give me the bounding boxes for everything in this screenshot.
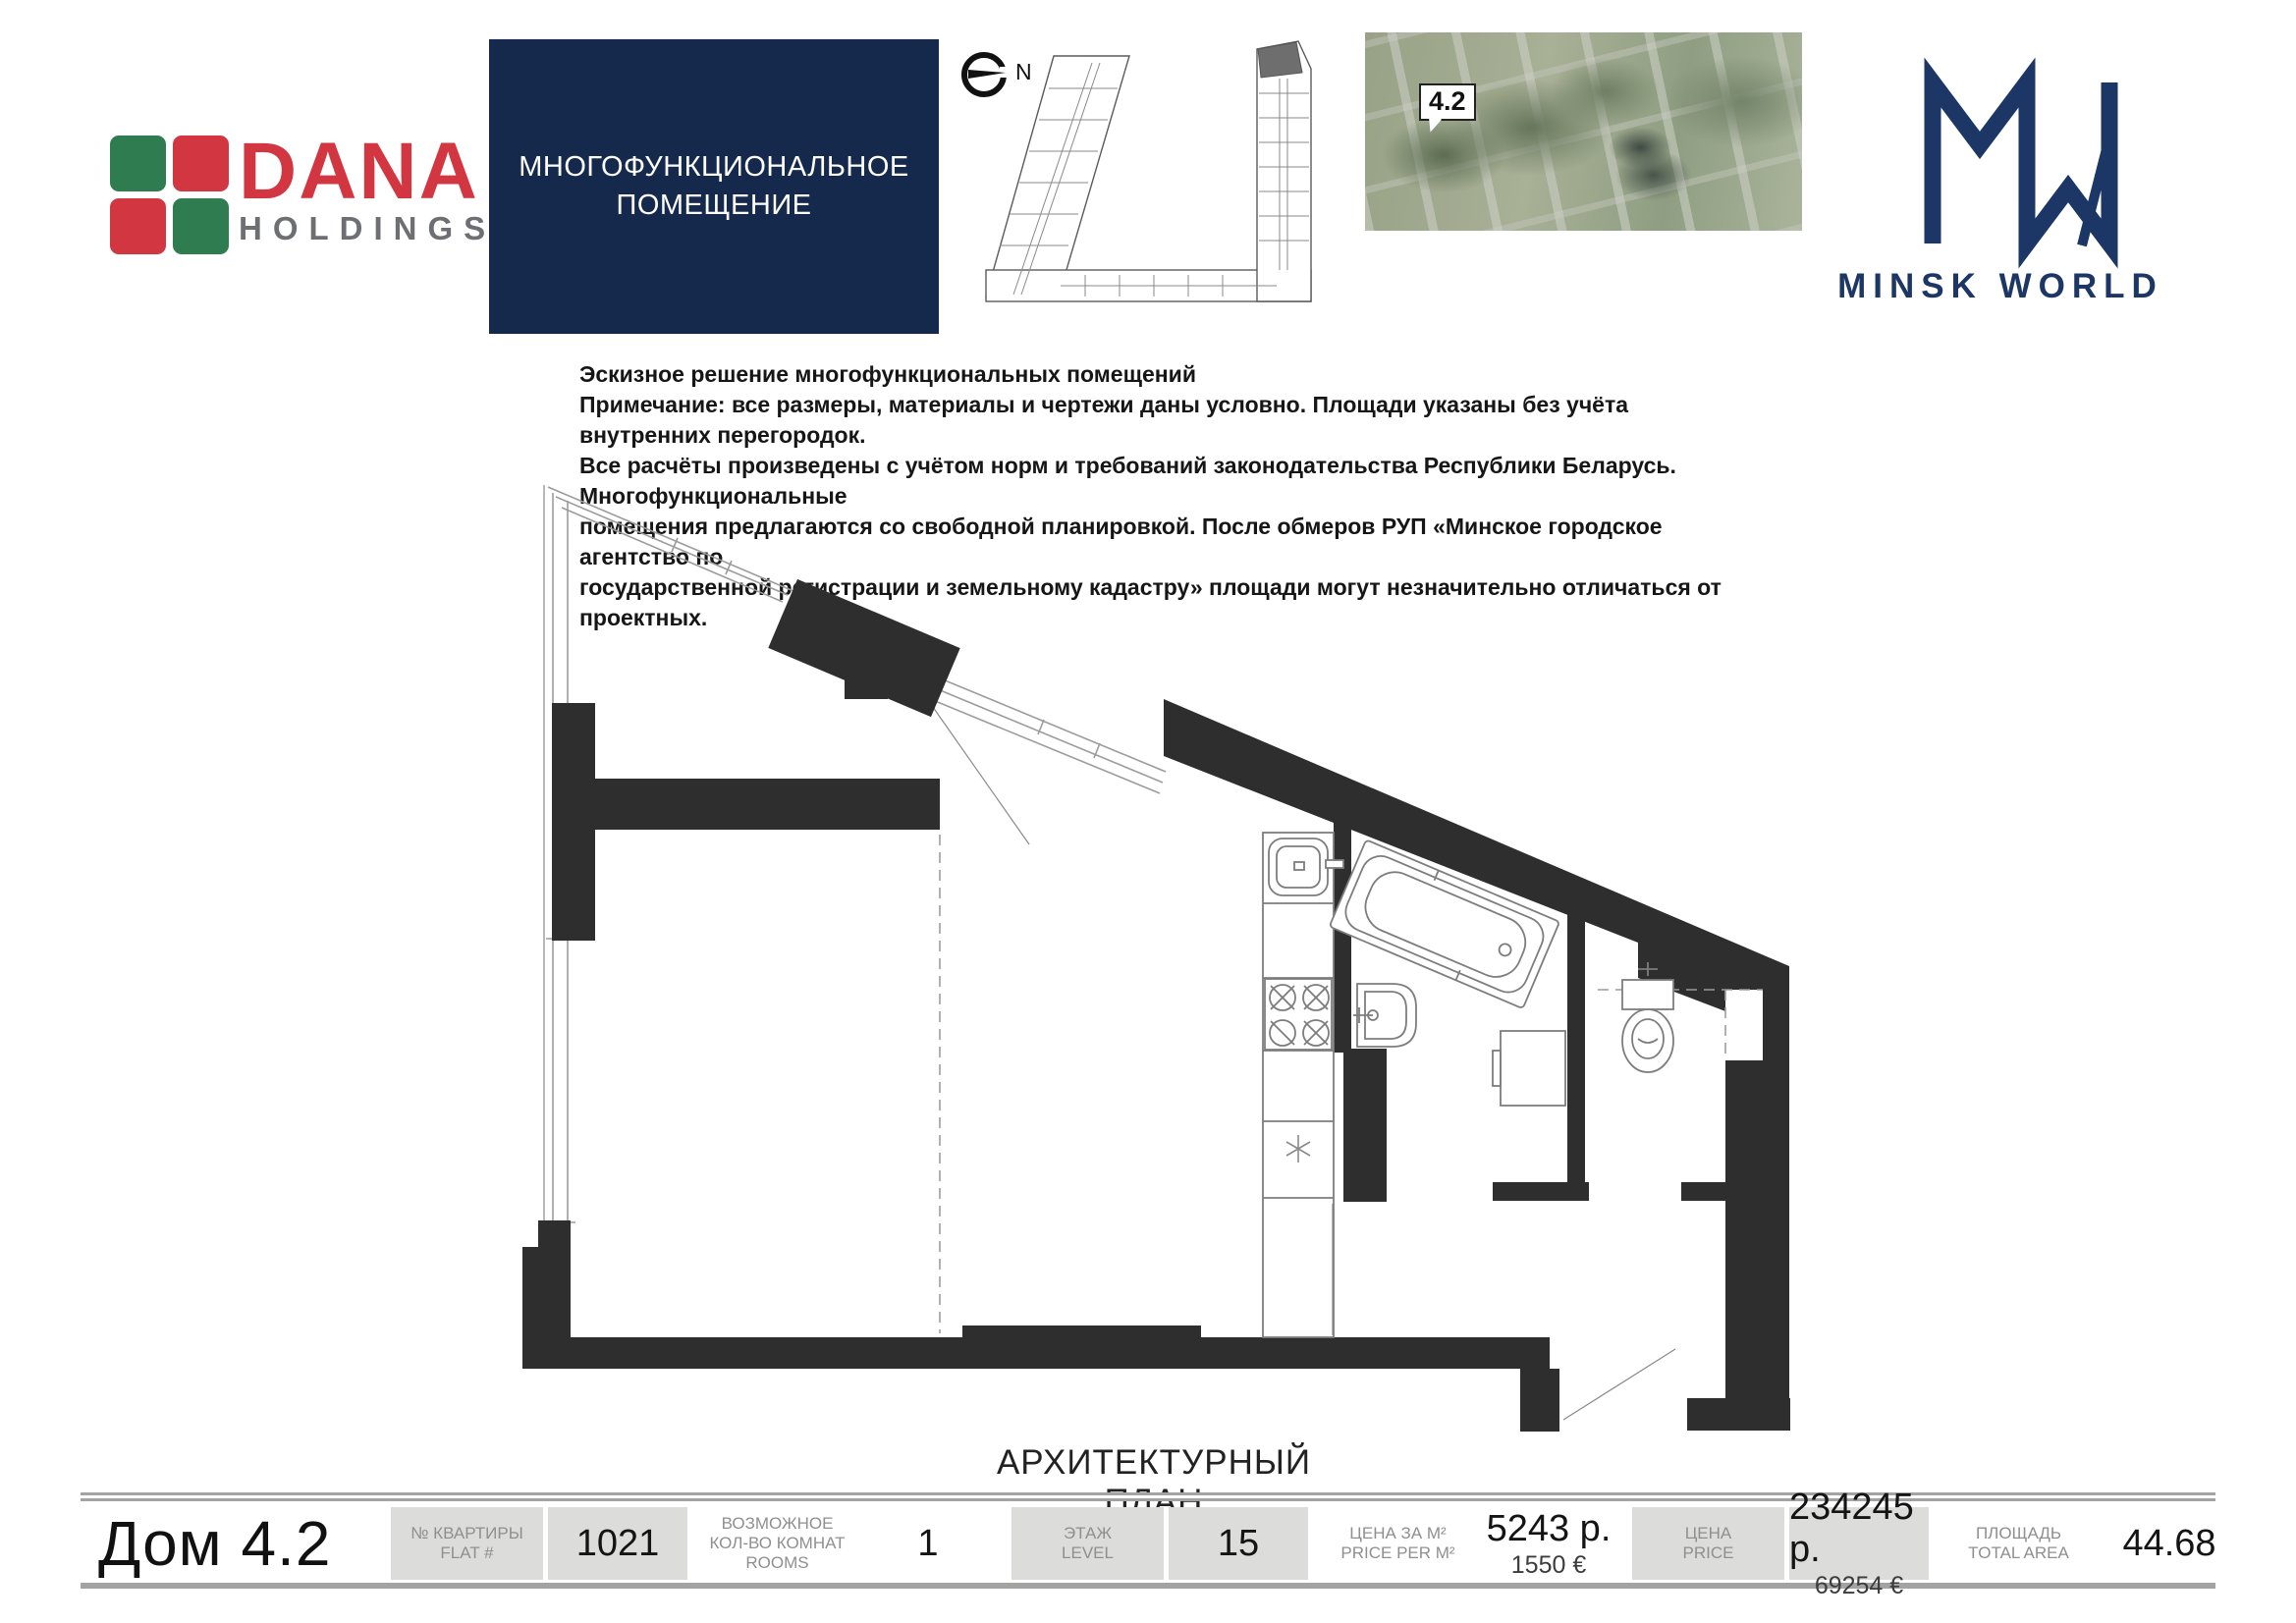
field-label-ru: ЦЕНА ЗА М² (1349, 1524, 1446, 1543)
field-label-ru: ПЛОЩАДЬ (1976, 1524, 2061, 1543)
field-label-en: FLAT # (440, 1543, 493, 1563)
summary-field: № КВАРТИРЫ FLAT # 1021 (391, 1507, 687, 1580)
field-label: ЦЕНА ЗА М² PRICE PER M² (1322, 1507, 1474, 1580)
washing-machine-icon (1493, 1031, 1565, 1106)
window-lines (544, 485, 1166, 1245)
walls (522, 579, 1790, 1432)
summary-field: ПЛОЩАДЬ TOTAL AREA 44.68 (1942, 1507, 2239, 1580)
field-label-en: LEVEL (1062, 1543, 1114, 1563)
summary-field: ЦЕНА ЗА М² PRICE PER M² 5243 р. 1550 € (1322, 1507, 1618, 1580)
field-value-sub: 1550 € (1511, 1551, 1586, 1580)
field-value-main: 5243 р. (1487, 1508, 1612, 1550)
basin-icon (1353, 984, 1416, 1047)
field-label: ЦЕНА PRICE (1632, 1507, 1784, 1580)
field-value-main: 44.68 (2122, 1523, 2215, 1565)
field-label-en: ROOMS (745, 1553, 808, 1573)
field-value: 44.68 (2100, 1507, 2239, 1580)
field-label: № КВАРТИРЫ FLAT # (391, 1507, 543, 1580)
kitchen-sink-icon (1269, 839, 1343, 895)
field-value: 1 (858, 1507, 998, 1580)
field-label-en: TOTAL AREA (1968, 1543, 2069, 1563)
field-value: 15 (1169, 1507, 1308, 1580)
field-value-main: 15 (1218, 1523, 1259, 1565)
snowflake-symbol (1286, 1135, 1310, 1163)
house-title: Дом 4.2 (98, 1507, 377, 1580)
field-label: ПЛОЩАДЬ TOTAL AREA (1942, 1507, 2095, 1580)
field-value: 5243 р. 1550 € (1479, 1507, 1618, 1580)
field-label-en: PRICE PER M² (1340, 1543, 1454, 1563)
field-label-ru: ВОЗМОЖНОЕ КОЛ-ВО КОМНАТ (701, 1514, 853, 1553)
field-value-main: 234245 р. (1789, 1487, 1929, 1571)
floor-plan-drawing (0, 0, 2296, 1623)
field-value-main: 1 (917, 1523, 938, 1565)
summary-bar: Дом 4.2 № КВАРТИРЫ FLAT # 1021 ВОЗМОЖНОЕ… (98, 1507, 2239, 1580)
plan-sheet: { "header": { "dana_logo": { "word": "DA… (0, 0, 2296, 1623)
field-label-ru: ЦЕНА (1685, 1524, 1732, 1543)
summary-field: ЦЕНА PRICE 234245 р. 69254 € (1632, 1507, 1929, 1580)
field-label: ЭТАЖ LEVEL (1011, 1507, 1164, 1580)
field-label-en: PRICE (1683, 1543, 1734, 1563)
summary-field: ВОЗМОЖНОЕ КОЛ-ВО КОМНАТ ROOMS 1 (701, 1507, 998, 1580)
footer-fields: № КВАРТИРЫ FLAT # 1021 ВОЗМОЖНОЕ КОЛ-ВО … (377, 1507, 2239, 1580)
field-label-ru: ЭТАЖ (1064, 1524, 1112, 1543)
field-label: ВОЗМОЖНОЕ КОЛ-ВО КОМНАТ ROOMS (701, 1507, 853, 1580)
entry-door-swing (1563, 1349, 1675, 1420)
field-value: 1021 (548, 1507, 687, 1580)
kitchen-counter (1263, 833, 1334, 1337)
field-value-main: 1021 (576, 1523, 660, 1565)
field-value-sub: 69254 € (1815, 1572, 1903, 1600)
stove-icon (1265, 979, 1332, 1050)
summary-field: ЭТАЖ LEVEL 15 (1011, 1507, 1308, 1580)
layout-dividers (940, 835, 1333, 1335)
field-value: 234245 р. 69254 € (1789, 1507, 1929, 1580)
field-label-ru: № КВАРТИРЫ (410, 1524, 523, 1543)
